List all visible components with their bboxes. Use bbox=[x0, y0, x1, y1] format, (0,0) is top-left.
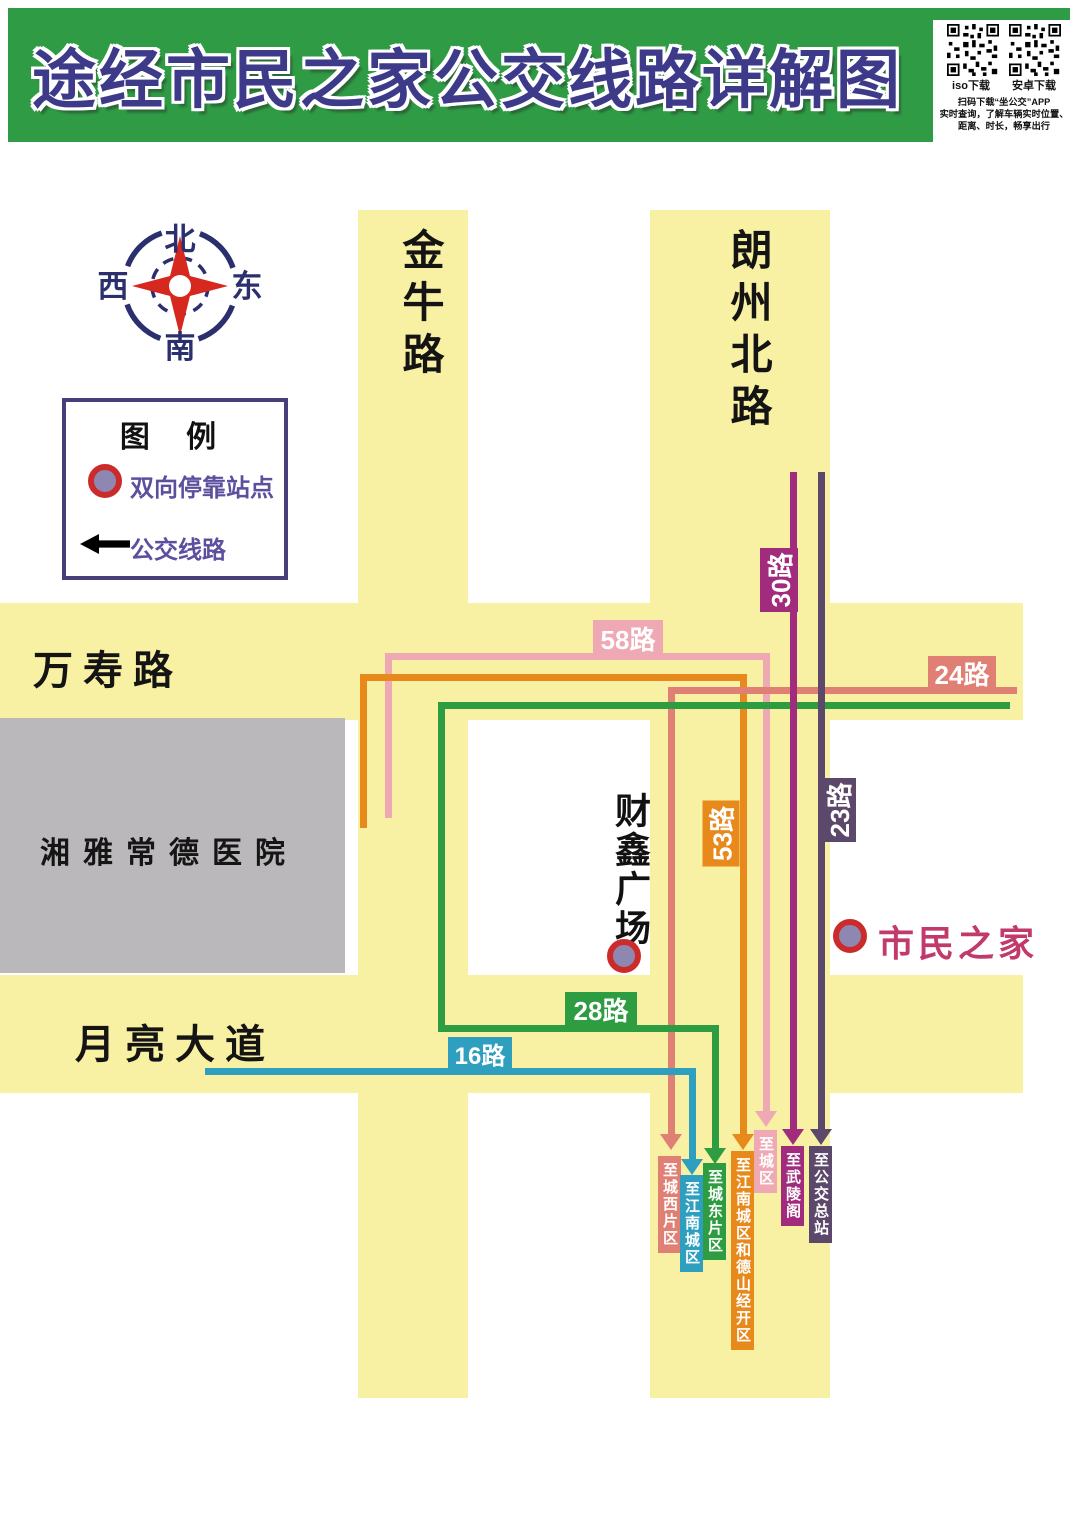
route-53-line-stub bbox=[360, 674, 367, 828]
shimin-home-stop bbox=[833, 919, 867, 953]
legend-stop-label: 双向停靠站点 bbox=[130, 468, 274, 503]
route-53-line-west bbox=[360, 674, 747, 681]
route-28-line-north bbox=[438, 702, 1010, 709]
route-arrow-icon bbox=[80, 534, 130, 554]
caixin-plaza-label: 财鑫广场 bbox=[604, 792, 656, 948]
road-label-wanshou: 万寿路 bbox=[33, 638, 183, 696]
qr-code-android bbox=[1009, 24, 1061, 76]
page-title: 途经市民之家公交线路详解图 bbox=[32, 29, 903, 121]
qr-caption: 扫码下载“坐公交”APP 实时查询，了解车辆实时位置、 距离、时长，畅享出行 bbox=[940, 97, 1069, 133]
compass-north: 北 bbox=[165, 222, 196, 257]
route-53-destination: 至江南城区和德山经开区 bbox=[731, 1151, 754, 1350]
route-28-line-west bbox=[438, 702, 445, 1032]
route-23-badge: 23路 bbox=[820, 778, 856, 842]
road-label-jinniu: 金牛路 bbox=[390, 228, 451, 384]
legend-title: 图 例 bbox=[66, 412, 284, 456]
compass-west: 西 bbox=[98, 269, 129, 304]
route-28-line-south bbox=[712, 1025, 719, 1150]
route-24-badge: 24路 bbox=[928, 656, 996, 691]
compass-rose: 北 南 西 东 bbox=[95, 198, 265, 368]
legend-box: 图 例 双向停靠站点 公交线路 bbox=[62, 398, 288, 580]
compass-east: 东 bbox=[232, 269, 263, 304]
hospital-label: 湘雅常德医院 bbox=[40, 828, 298, 872]
route-28-badge: 28路 bbox=[565, 992, 637, 1027]
stop-icon bbox=[88, 464, 122, 498]
route-58-line-south bbox=[763, 653, 770, 1113]
qr-android-label: 安卓下载 bbox=[1012, 77, 1056, 93]
caixin-plaza-stop bbox=[607, 939, 641, 973]
shimin-home-label: 市民之家 bbox=[878, 915, 1038, 967]
road-label-langzhou: 朗州北路 bbox=[718, 228, 779, 436]
route-58-destination: 至城区 bbox=[754, 1130, 777, 1193]
route-53-badge: 53路 bbox=[703, 801, 740, 867]
route-58-badge: 58路 bbox=[593, 620, 663, 657]
route-16-destination: 至江南城区 bbox=[680, 1175, 703, 1272]
route-53-line-south bbox=[740, 674, 747, 1136]
road-label-yueliang: 月亮大道 bbox=[75, 1012, 275, 1070]
route-23-destination: 至公交总站 bbox=[809, 1146, 832, 1243]
road-jinniu bbox=[358, 210, 468, 1398]
route-16-badge: 16路 bbox=[448, 1037, 512, 1070]
route-24-destination: 至城西片区 bbox=[658, 1156, 681, 1253]
route-30-destination: 至武陵阁 bbox=[781, 1146, 804, 1226]
route-16-line-south bbox=[689, 1068, 696, 1161]
header-banner: 途经市民之家公交线路详解图 bbox=[8, 8, 1070, 142]
qr-ios-label: iso下载 bbox=[952, 77, 990, 93]
qr-code-ios bbox=[947, 24, 999, 76]
route-30-badge: 30路 bbox=[760, 548, 798, 612]
route-58-line-west bbox=[385, 653, 770, 660]
compass-south: 南 bbox=[165, 330, 196, 365]
legend-route-label: 公交线路 bbox=[130, 530, 226, 565]
bus-route-map: 途经市民之家公交线路详解图 bbox=[0, 0, 1080, 1528]
route-28-destination: 至城东片区 bbox=[703, 1163, 726, 1260]
qr-panel: iso下载 安卓下载 扫码下载“坐公交”APP 实时查询，了解车辆实时位置、 距… bbox=[933, 20, 1075, 146]
